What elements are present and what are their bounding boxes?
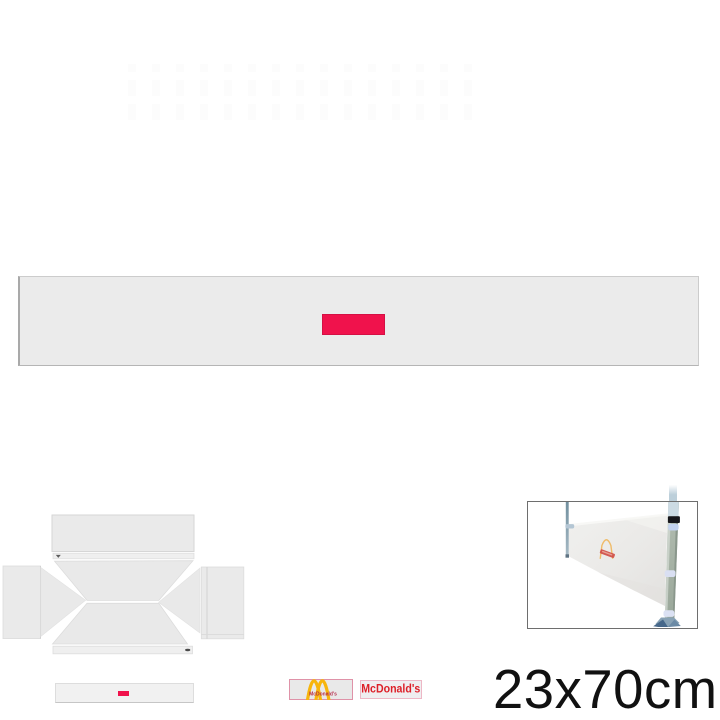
svg-text:McDonald's: McDonald's bbox=[309, 691, 337, 697]
